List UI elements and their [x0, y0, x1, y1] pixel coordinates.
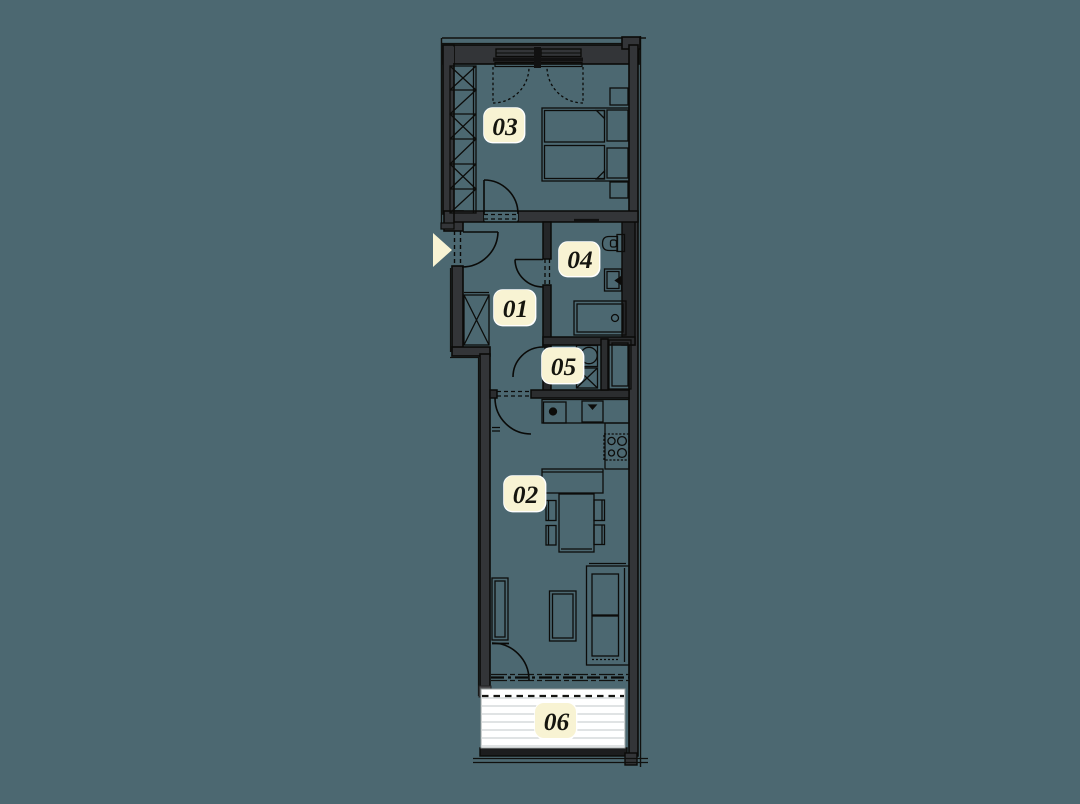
svg-text:04: 04 [567, 245, 593, 274]
svg-text:03: 03 [492, 112, 518, 141]
svg-text:02: 02 [513, 480, 539, 509]
svg-text:05: 05 [551, 352, 577, 381]
svg-text:01: 01 [503, 294, 529, 323]
svg-text:06: 06 [544, 707, 570, 736]
